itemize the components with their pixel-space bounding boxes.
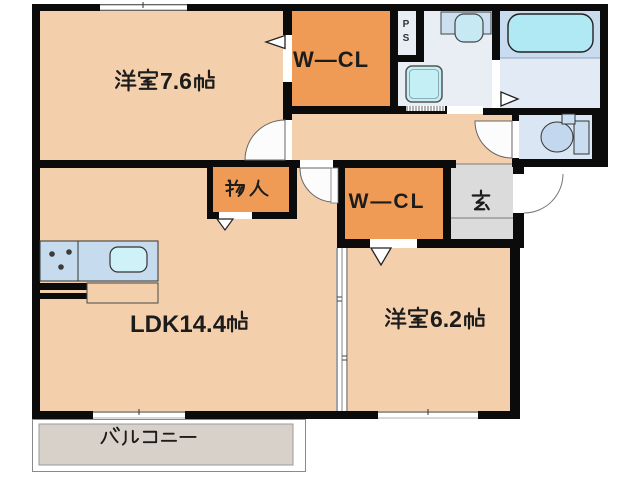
svg-text:P: P [403,19,410,30]
svg-text:6.2: 6.2 [430,306,462,332]
svg-text:W—CL: W—CL [293,47,369,72]
svg-text:S: S [403,33,410,44]
svg-text:LDK14.4: LDK14.4 [130,311,227,338]
svg-text:7.6: 7.6 [160,68,192,94]
svg-text:W—CL: W—CL [349,190,426,213]
